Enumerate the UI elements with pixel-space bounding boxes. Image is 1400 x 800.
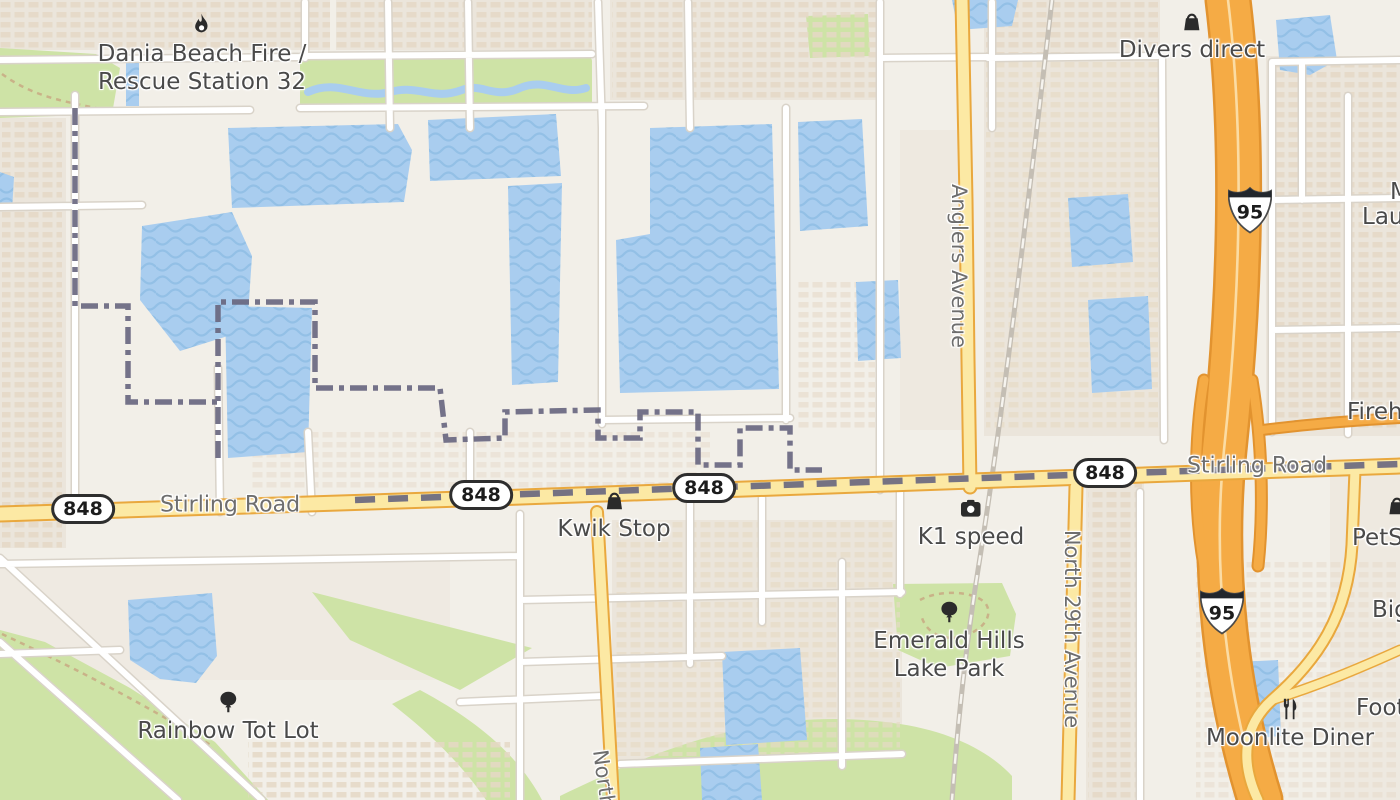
road-label-anglers-avenue: Anglers Avenue xyxy=(947,184,971,348)
poi-dania-beach-fire-station[interactable]: Dania Beach Fire / Rescue Station 32 xyxy=(98,12,307,96)
poi-rainbow-tot-lot[interactable]: Rainbow Tot Lot xyxy=(137,689,318,745)
poi-label-line1: Rainbow Tot Lot xyxy=(137,717,318,745)
poi-emerald-hills-lake-park[interactable]: Emerald Hills Lake Park xyxy=(873,599,1024,683)
map-canvas[interactable]: Stirling Road Stirling Road Anglers Aven… xyxy=(0,0,1400,800)
road-label-stirling-road-west: Stirling Road xyxy=(160,493,300,518)
poi-label-line1: Emerald Hills xyxy=(873,627,1024,655)
route-shield-848-a: 848 xyxy=(51,494,115,524)
poi-m-partial[interactable]: M xyxy=(1390,178,1400,206)
poi-label-line2: Lake Park xyxy=(873,655,1024,683)
camera-icon xyxy=(958,495,984,521)
poi-label-line1: Divers direct xyxy=(1119,36,1265,64)
poi-lau-partial[interactable]: Lau xyxy=(1362,203,1400,231)
poi-firehouse-partial[interactable]: Firehou xyxy=(1347,398,1400,426)
shopping-bag-icon xyxy=(1384,492,1400,518)
route-shield-848-c: 848 xyxy=(672,473,736,503)
poi-foot-partial[interactable]: Foot xyxy=(1356,694,1400,722)
route-shield-848-b: 848 xyxy=(449,480,513,510)
poi-kwik-stop[interactable]: Kwik Stop xyxy=(557,487,670,543)
map-tiles xyxy=(0,0,1400,800)
poi-label-line1: Dania Beach Fire / xyxy=(98,40,307,68)
interstate-95-shield-north: 95 xyxy=(1228,187,1272,234)
shopping-bag-icon xyxy=(1179,8,1205,34)
road-label-north-29th-avenue: North 29th Avenue xyxy=(1060,530,1084,728)
poi-label-line2: Rescue Station 32 xyxy=(98,68,307,96)
poi-divers-direct[interactable]: Divers direct xyxy=(1119,8,1265,64)
poi-label-line1: Moonlite Diner xyxy=(1206,724,1374,752)
poi-moonlite-diner[interactable]: Moonlite Diner xyxy=(1206,696,1374,752)
fire-icon xyxy=(189,12,215,38)
tree-icon xyxy=(215,689,241,715)
shopping-bag-icon xyxy=(601,487,627,513)
poi-label-line1: K1 speed xyxy=(918,523,1025,551)
road-label-stirling-road-east: Stirling Road xyxy=(1187,454,1327,479)
poi-big-partial[interactable]: Big xyxy=(1372,596,1400,624)
dining-icon xyxy=(1277,696,1303,722)
interstate-95-shield-south: 95 xyxy=(1200,588,1244,635)
poi-label-line1: Kwik Stop xyxy=(557,515,670,543)
poi-petsmart-partial[interactable]: PetSm xyxy=(1352,524,1400,552)
route-shield-848-d: 848 xyxy=(1073,458,1137,488)
poi-k1-speed[interactable]: K1 speed xyxy=(918,495,1025,551)
tree-icon xyxy=(936,599,962,625)
